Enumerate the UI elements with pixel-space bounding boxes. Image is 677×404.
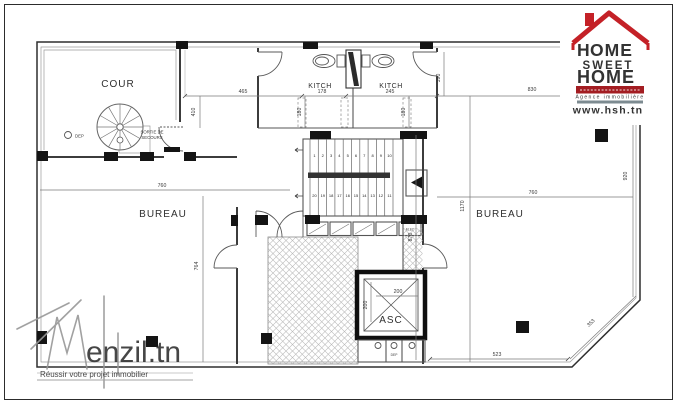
dim-245: 245 <box>386 89 395 95</box>
stair-handrail <box>308 173 390 179</box>
stair-num: 15 <box>354 193 359 198</box>
asc-label: ASC <box>379 315 403 326</box>
logo-agency-line: Agence immobilière <box>575 95 644 101</box>
logo-home-top-rest: OME <box>590 40 633 60</box>
sortie-label-2: SECOURS <box>141 135 162 140</box>
wc-left <box>313 55 345 68</box>
stair-num: 13 <box>370 193 375 198</box>
watermark-tagline: Réussir votre projet immobilier <box>40 370 148 379</box>
dim-1170: 1170 <box>460 200 466 211</box>
logo-micro-bar <box>577 101 643 104</box>
dim-523: 523 <box>493 352 502 358</box>
dim-760-left: 760 <box>158 183 167 189</box>
stair-num: 17 <box>337 193 342 198</box>
dim-180-left: 180 <box>297 108 303 117</box>
dim-178: 178 <box>318 89 327 95</box>
dim-920: 920 <box>623 172 629 181</box>
dim-870: 870 <box>408 233 414 242</box>
dim-410: 410 <box>191 108 197 117</box>
stair-num: 19 <box>321 193 326 198</box>
logo-home-bottom-h: H <box>577 67 590 87</box>
logo-website: www.hsh.tn <box>572 105 644 117</box>
dep-cour-label: DEP <box>75 134 84 139</box>
dim-asc-depth: 200 <box>363 301 369 310</box>
elevator: ASC 200 200 <box>357 272 425 338</box>
watermark-name: enzil.tn <box>86 336 181 369</box>
logo-home-top-h: H <box>577 40 590 60</box>
stair-num: 20 <box>312 193 317 198</box>
dim-180-right: 180 <box>401 108 407 117</box>
stair-num: 12 <box>379 193 384 198</box>
dep-asc-label: DEP <box>391 353 399 357</box>
floor-plan-image: 1 2 3 4 5 6 7 8 9 10 20 19 18 17 16 15 1… <box>0 0 677 404</box>
dim-465: 465 <box>239 89 248 95</box>
room-label-cour: COUR <box>101 79 134 90</box>
dim-764: 764 <box>194 262 200 271</box>
dim-390: 390 <box>436 74 442 83</box>
dim-760-right: 760 <box>529 190 538 196</box>
wc-right <box>362 55 394 68</box>
stair-num: 10 <box>387 153 392 158</box>
hall-hatch <box>268 237 358 364</box>
logo-home-bottom-rest: OME <box>591 67 635 87</box>
sortie-label-1: SORTIE DE <box>140 130 163 135</box>
room-label-bureau-right: BUREAU <box>476 209 524 220</box>
dep-cour-symbol <box>65 132 72 139</box>
stair-num: 18 <box>329 193 334 198</box>
hsh-logo: H OME SWEET H OME Agence immobilière www… <box>560 5 672 125</box>
room-label-bureau-left: BUREAU <box>139 209 187 220</box>
dim-asc-width: 200 <box>394 289 403 295</box>
dim-830: 830 <box>528 87 537 93</box>
stair-num: 16 <box>345 193 350 198</box>
stair-num: 14 <box>362 193 367 198</box>
